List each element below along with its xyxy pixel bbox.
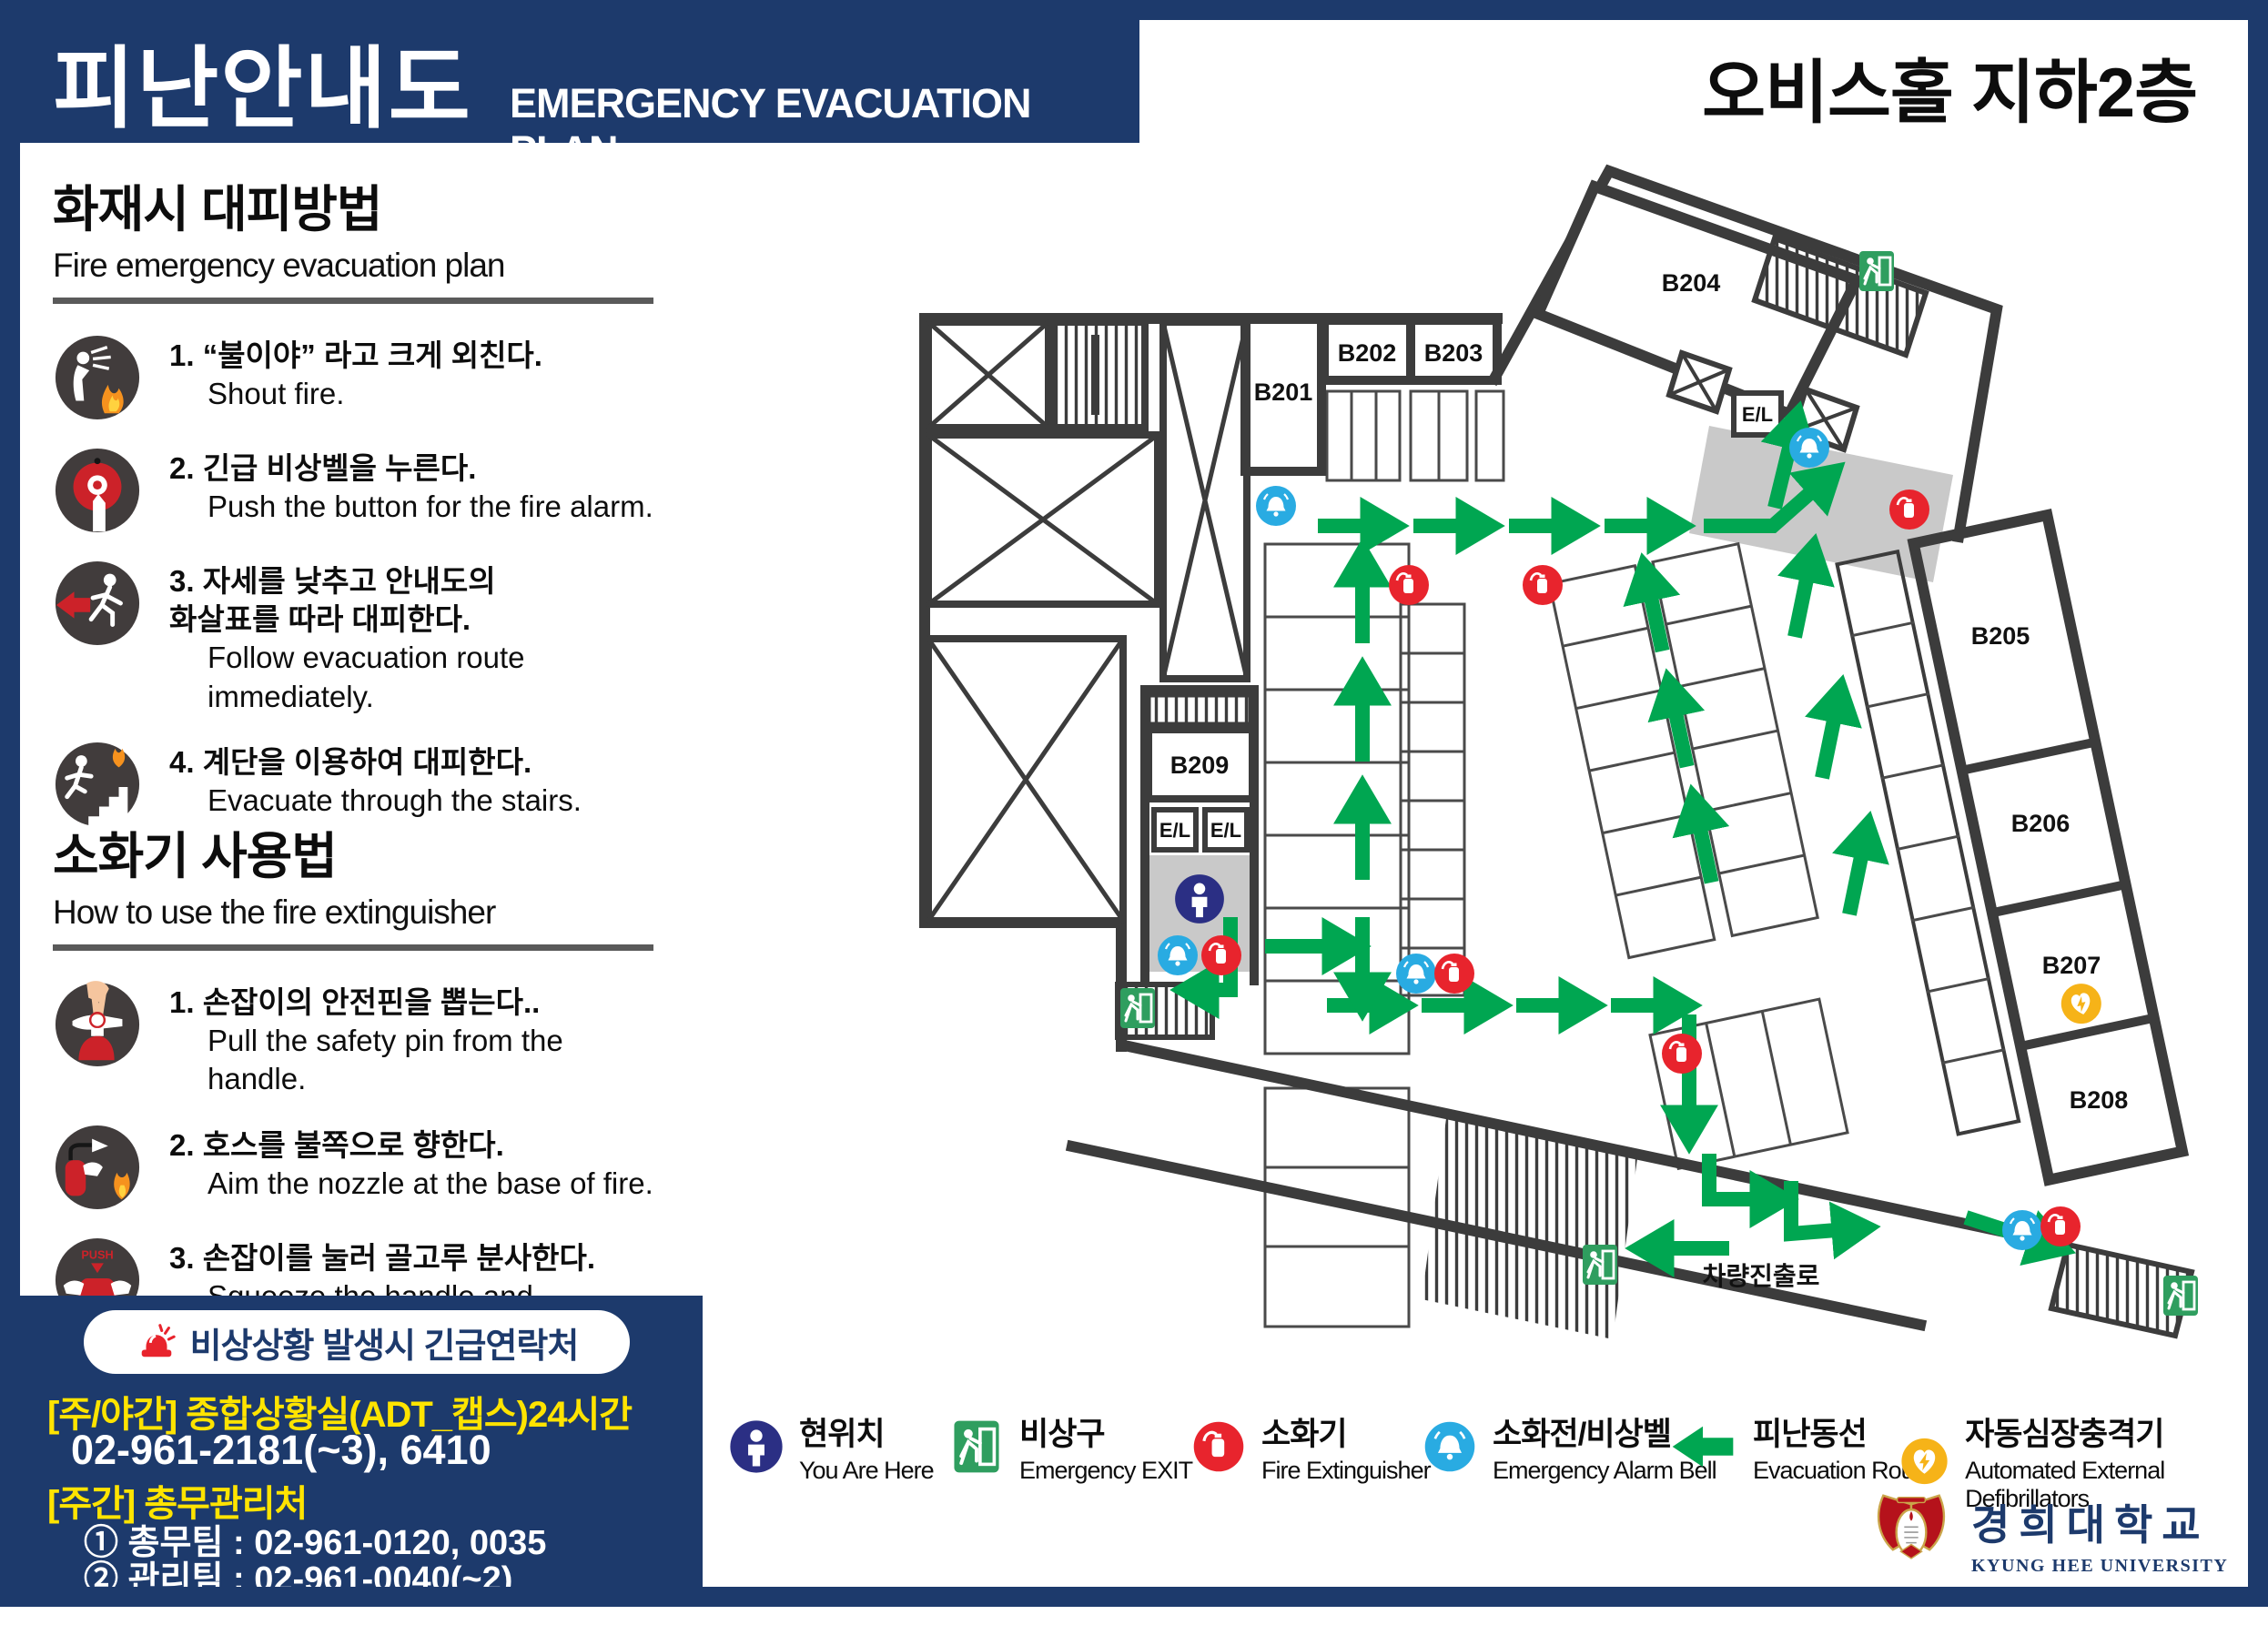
- alarm-bell-icon: [1158, 935, 1198, 975]
- extinguisher-step-2: 2. 호스를 불쪽으로 향한다. Aim the nozzle at the b…: [53, 1123, 661, 1212]
- fire-extinguisher-icon: [1434, 954, 1474, 994]
- elevator-label: E/L: [1210, 819, 1241, 842]
- aed-icon: [1898, 1433, 1950, 1489]
- alarm-bell-icon: [2002, 1210, 2042, 1250]
- legend-en: Fire Extinguisher: [1261, 1457, 1431, 1485]
- legend-en: Emergency EXIT: [1019, 1457, 1192, 1485]
- legend-ko: 비상구: [1019, 1408, 1192, 1455]
- fire-extinguisher-icon: [1201, 935, 1241, 975]
- university-logo: 경희대학교 KYUNG HEE UNIVERSITY: [1868, 1490, 2228, 1578]
- section-divider: [53, 298, 653, 304]
- university-name-en: KYUNG HEE UNIVERSITY: [1971, 1556, 2228, 1577]
- legend-fire-extinguisher: 소화기Fire Extinguisher: [1190, 1408, 1431, 1485]
- fire-step-2-ko: 2. 긴급 비상벨을 누른다.: [169, 449, 653, 488]
- legend-evacuation-route: 피난동선Evacuation Route: [1667, 1408, 1932, 1485]
- fire-step-1-ko: 1. “불이야” 라고 크게 외친다.: [169, 337, 542, 375]
- university-crest-icon: [1868, 1490, 1955, 1578]
- extinguisher-section-subtitle: How to use the fire extinguisher: [53, 893, 661, 932]
- fire-step-2-en: Push the button for the fire alarm.: [169, 488, 653, 526]
- fire-step-4-ko: 4. 계단을 이용하여 대피한다.: [169, 743, 582, 782]
- room-label-b203: B203: [1424, 339, 1483, 367]
- shout-fire-icon: [53, 333, 142, 422]
- room-label-b205: B205: [1971, 622, 2030, 650]
- room-label-b201: B201: [1254, 378, 1313, 406]
- page-title-korean: 피난안내도: [53, 16, 472, 146]
- building-floor-title: 오비스홀 지하2층: [1702, 36, 2197, 136]
- floor-plan: B201 B202 B203 B204 B205 B206 B207 B208 …: [906, 127, 2262, 1392]
- siren-icon: [136, 1319, 177, 1366]
- emergency-contact-panel: 비상상황 발생시 긴급연락처 [주/야간] 종합상황실(ADT_캡스)24시간 …: [0, 1296, 703, 1607]
- you-are-here-icon: [1175, 874, 1224, 923]
- room-label-b209: B209: [1170, 752, 1230, 779]
- room-label-b206: B206: [2011, 810, 2071, 837]
- room-label-b202: B202: [1338, 339, 1397, 367]
- fire-step-3-en: Follow evacuation route immediately.: [169, 639, 661, 715]
- alarm-bell-icon: [1396, 954, 1436, 994]
- aed-icon: [2058, 980, 2105, 1027]
- elevator-label: E/L: [1742, 403, 1773, 426]
- ext-step-3-ko: 3. 손잡이를 눌러 골고루 분사한다.: [169, 1239, 661, 1277]
- ext-step-2-ko: 2. 호스를 불쪽으로 향한다.: [169, 1126, 653, 1165]
- legend-ko: 자동심장충격기: [1965, 1408, 2268, 1455]
- contact-banner-text: 비상상황 발생시 긴급연락처: [190, 1317, 579, 1368]
- section-divider: [53, 944, 653, 951]
- room-label-b208: B208: [2070, 1086, 2129, 1114]
- fire-extinguisher-icon: [1523, 565, 1563, 605]
- fire-extinguisher-icon: [1662, 1034, 1702, 1074]
- aim-nozzle-icon: [53, 1123, 142, 1212]
- fire-step-2: 2. 긴급 비상벨을 누른다. Push the button for the …: [53, 446, 661, 535]
- university-name-ko: 경희대학교: [1971, 1492, 2228, 1552]
- fire-extinguisher-icon: [2040, 1206, 2081, 1246]
- legend-en: You Are Here: [799, 1457, 934, 1485]
- evacuation-route-icon: [1667, 1424, 1738, 1469]
- contact-main-phone: 02-961-2181(~3), 6410: [71, 1427, 491, 1474]
- fire-step-1-en: Shout fire.: [169, 375, 542, 413]
- elevator-label: E/L: [1159, 819, 1190, 842]
- contact-banner: 비상상황 발생시 긴급연락처: [84, 1310, 630, 1374]
- alarm-bell-icon: [1422, 1418, 1478, 1475]
- fire-step-3-ko: 3. 자세를 낮추고 안내도의 화살표를 따라 대피한다.: [169, 562, 661, 639]
- alarm-button-icon: [53, 446, 142, 535]
- alarm-bell-icon: [1789, 428, 1829, 468]
- follow-route-icon: [53, 559, 142, 648]
- you-are-here-icon: [728, 1418, 785, 1475]
- room-label-b207: B207: [2042, 952, 2101, 979]
- fire-extinguisher-icon: [1889, 489, 1929, 530]
- vehicle-exit-label: 차량진출로: [1703, 1262, 1820, 1290]
- emergency-exit-icon: [1120, 988, 1155, 1028]
- fire-extinguisher-icon: [1389, 565, 1429, 605]
- svg-text:PUSH: PUSH: [81, 1247, 113, 1261]
- emergency-exit-icon: [1583, 1245, 1617, 1285]
- room-label-b204: B204: [1662, 269, 1721, 297]
- legend-you-are-here: 현위치You Are Here: [728, 1408, 934, 1485]
- ext-step-2-en: Aim the nozzle at the base of fire.: [169, 1165, 653, 1203]
- emergency-exit-icon: [948, 1416, 1005, 1478]
- contact-team-3: ③ 안전팀 : 02-961-0119: [84, 1585, 449, 1635]
- ext-step-1-ko: 1. 손잡이의 안전핀을 뽑는다..: [169, 984, 661, 1022]
- legend-ko: 현위치: [799, 1408, 934, 1455]
- fire-step-3: 3. 자세를 낮추고 안내도의 화살표를 따라 대피한다. Follow eva…: [53, 559, 661, 716]
- alarm-bell-icon: [1256, 486, 1296, 526]
- fire-extinguisher-icon: [1190, 1418, 1247, 1475]
- legend-emergency-exit: 비상구Emergency EXIT: [948, 1408, 1192, 1485]
- fire-evacuation-section: 화재시 대피방법 Fire emergency evacuation plan …: [53, 168, 661, 853]
- extinguisher-section-title: 소화기 사용법: [53, 815, 661, 888]
- pull-pin-icon: [53, 980, 142, 1069]
- extinguisher-step-1: 1. 손잡이의 안전핀을 뽑는다.. Pull the safety pin f…: [53, 980, 661, 1099]
- emergency-exit-icon: [2163, 1276, 2198, 1316]
- emergency-exit-icon: [1859, 251, 1894, 291]
- header-band: 피난안내도 EMERGENCY EVACUATION PLAN: [0, 0, 1139, 143]
- fire-section-title: 화재시 대피방법: [53, 168, 661, 241]
- fire-step-1: 1. “불이야” 라고 크게 외친다. Shout fire.: [53, 333, 661, 422]
- walls: [925, 171, 2192, 1339]
- fire-section-subtitle: Fire emergency evacuation plan: [53, 247, 661, 285]
- legend-ko: 소화기: [1261, 1408, 1431, 1455]
- ext-step-1-en: Pull the safety pin from the handle.: [169, 1022, 661, 1098]
